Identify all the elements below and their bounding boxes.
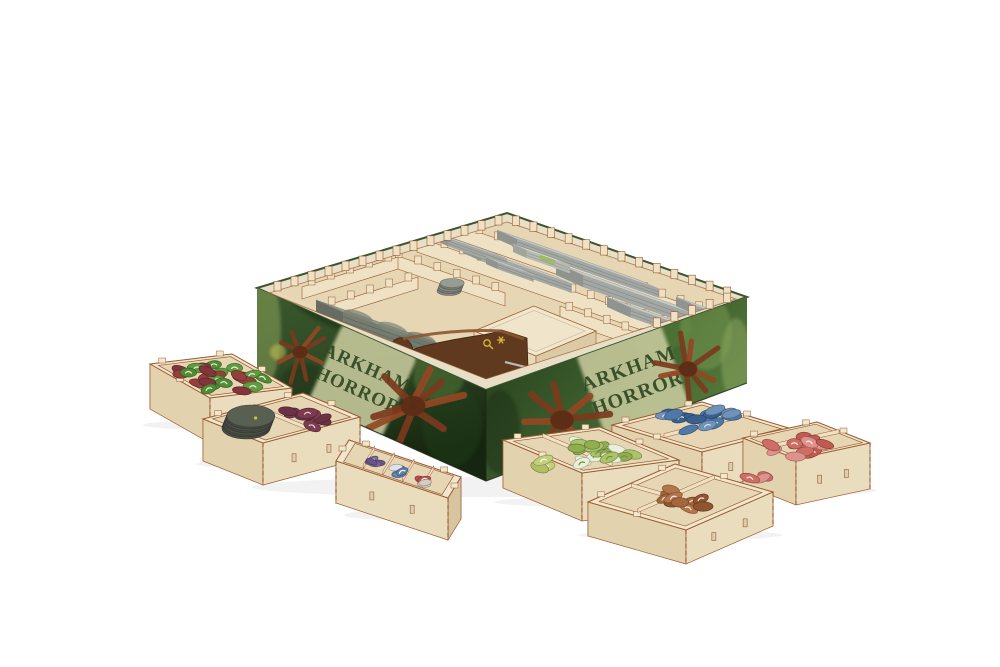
- token-stack: [437, 279, 464, 296]
- scene-svg: ARKHAM HORROR ARKHAM HORROR: [0, 0, 1000, 667]
- product-photo: ARKHAM HORROR ARKHAM HORROR: [0, 0, 1000, 667]
